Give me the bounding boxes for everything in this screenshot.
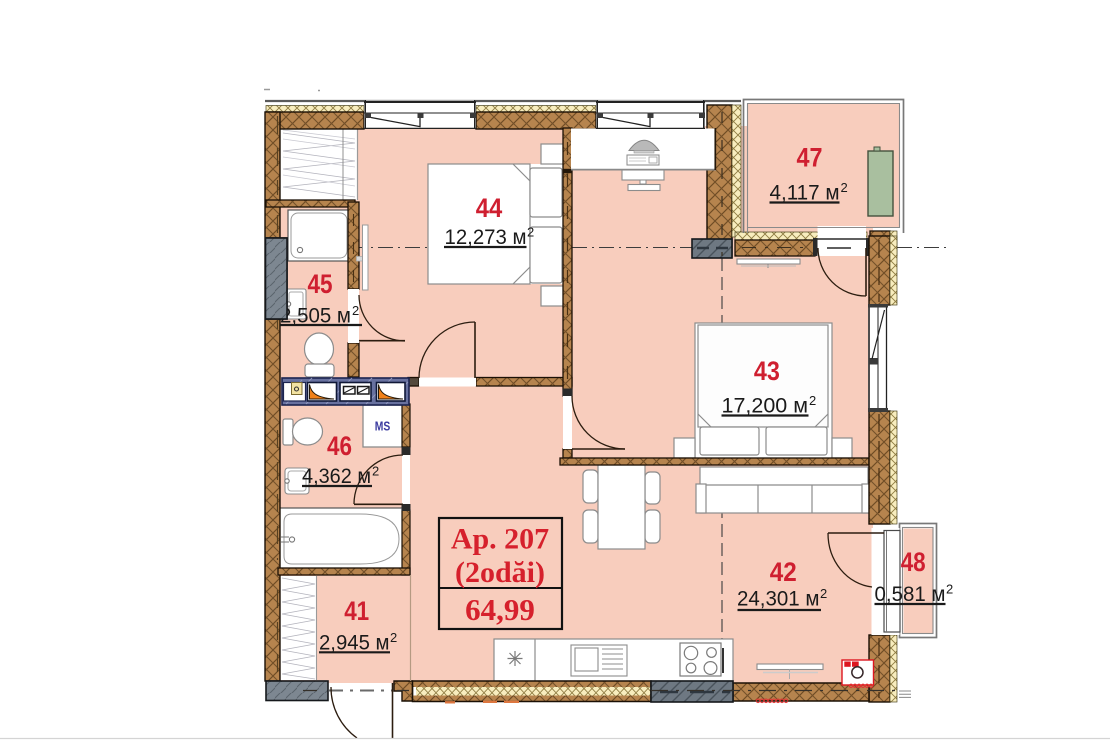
svg-text:45: 45 <box>308 269 333 299</box>
svg-text:44: 44 <box>476 193 503 223</box>
svg-text:2: 2 <box>820 586 827 601</box>
svg-text:48: 48 <box>901 547 926 577</box>
svg-text:64,99: 64,99 <box>465 592 535 627</box>
svg-text:2: 2 <box>372 463 379 478</box>
svg-text:12,273 м: 12,273 м <box>445 226 527 249</box>
svg-text:Ap. 207: Ap. 207 <box>451 523 549 556</box>
svg-text:2: 2 <box>841 180 848 195</box>
svg-text:4,117 м: 4,117 м <box>770 182 840 205</box>
svg-text:4,362 м: 4,362 м <box>302 465 371 488</box>
svg-text:47: 47 <box>797 143 823 173</box>
svg-text:43: 43 <box>754 356 780 386</box>
svg-text:2: 2 <box>527 225 534 240</box>
svg-text:2,945 м: 2,945 м <box>319 632 390 655</box>
svg-text:46: 46 <box>327 431 352 461</box>
svg-text:17,200 м: 17,200 м <box>722 395 809 418</box>
svg-text:(2odăi): (2odăi) <box>455 556 545 589</box>
svg-text:42: 42 <box>770 557 797 587</box>
svg-text:2: 2 <box>946 581 953 596</box>
svg-text:41: 41 <box>344 596 369 626</box>
svg-text:MS: MS <box>375 420 391 434</box>
svg-text:2: 2 <box>352 303 359 318</box>
svg-text:2: 2 <box>809 393 816 408</box>
svg-text:2: 2 <box>390 630 397 645</box>
svg-text:0,581 м: 0,581 м <box>875 583 946 606</box>
svg-text:24,301 м: 24,301 м <box>737 588 820 611</box>
